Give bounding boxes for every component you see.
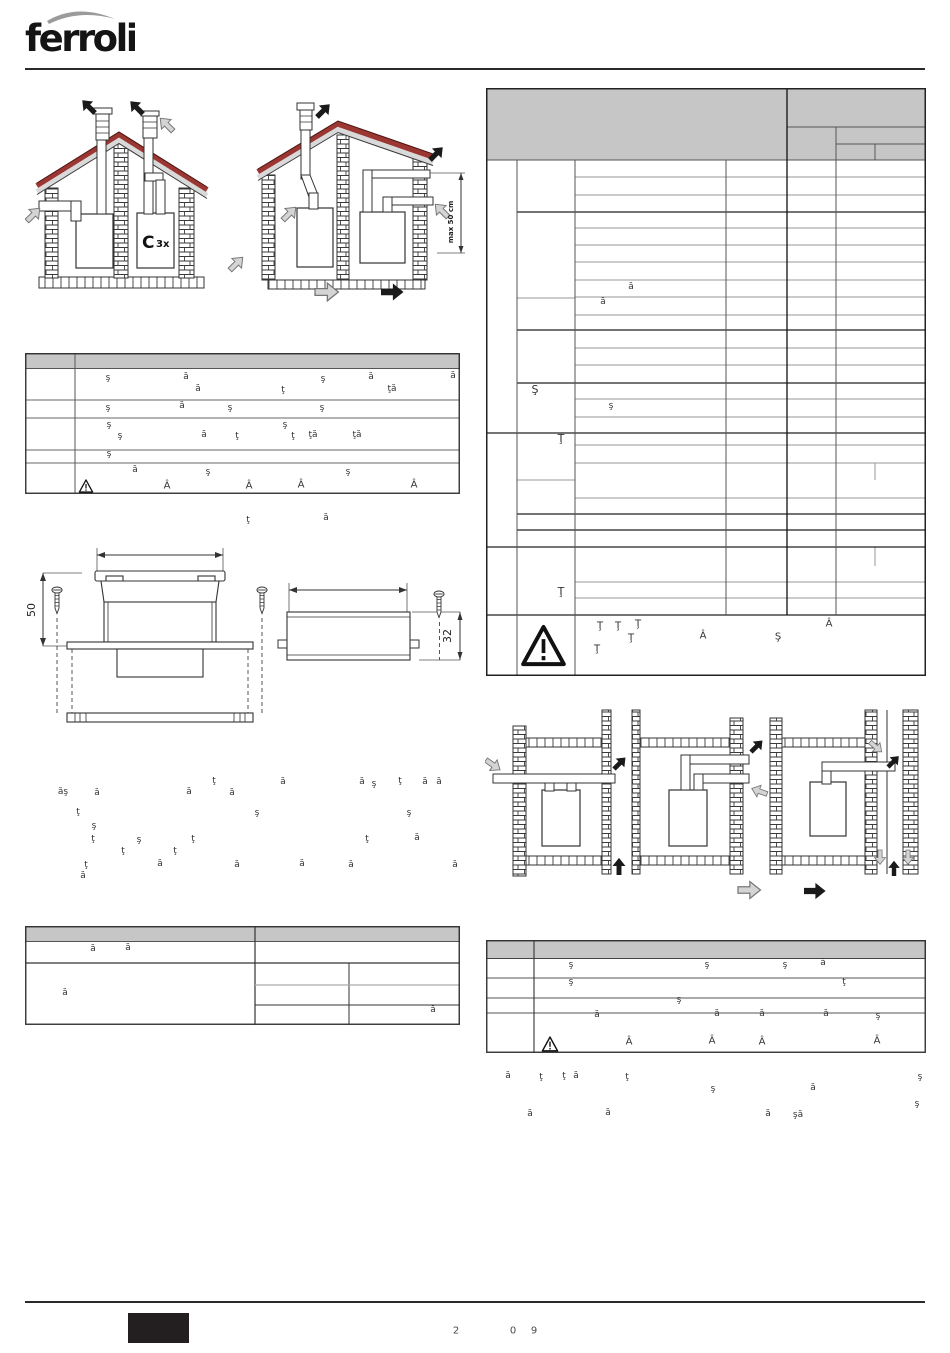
residual-char-bottom-right-table: ş: [876, 1012, 881, 1021]
residual-char-bottom-left-table: ă: [62, 989, 68, 998]
manual-page: ferroli C: [0, 0, 950, 1353]
residual-char-bottom-right-table: Â: [626, 1038, 633, 1048]
residual-char-bottom-left-table: ă: [90, 945, 96, 954]
residual-char-left-table: Â: [411, 481, 418, 491]
residual-char-bottom-right-text: ş: [915, 1100, 920, 1109]
residual-char-bottom-right-table: ă: [823, 1010, 829, 1019]
residual-char-left-table: ş: [320, 404, 325, 413]
residual-char-big-table: Ţ: [558, 586, 565, 597]
residual-char-big-table: Ş: [775, 633, 781, 643]
residual-char-bottom-right-table: Â: [709, 1037, 716, 1047]
residual-char-bottom-right-text: ă: [765, 1110, 771, 1119]
residual-char-paragraph: ă: [234, 861, 240, 870]
residual-char-paragraph: ă: [359, 778, 365, 787]
residual-char-big-table: Ţ: [594, 645, 600, 655]
residual-char-bottom-right-table: ă: [820, 959, 826, 968]
residual-char-left-table: Â: [246, 482, 253, 492]
residual-char-bottom-right-text: ţ: [562, 1072, 566, 1081]
residual-char-bottom-right-table: ş: [677, 996, 682, 1005]
residual-char-bottom-right-text: ţ: [625, 1073, 629, 1082]
residual-char-paragraph: ţ: [191, 835, 195, 844]
residual-char-paragraph: ş: [407, 809, 412, 818]
residual-char-big-table: Ţ: [635, 620, 641, 630]
residual-char-bottom-right-text: ă: [527, 1110, 533, 1119]
residual-char-big-table: Ţ: [615, 622, 621, 632]
residual-char-left-table: ş: [346, 468, 351, 477]
residual-char-bottom-right-text: ţ: [539, 1073, 543, 1082]
residual-char-left-table: ţă: [352, 431, 361, 440]
residual-char-paragraph: ă: [422, 778, 428, 787]
residual-char-paragraph: ţ: [76, 808, 80, 817]
residual-char-paragraph: ţ: [84, 861, 88, 870]
residual-char-paragraph: ă: [280, 778, 286, 787]
residual-char-footer: 9: [531, 1327, 537, 1337]
residual-char-bottom-right-table: ţ: [842, 978, 846, 987]
residual-char-paragraph: ţ: [173, 847, 177, 856]
residual-char-paragraph: ă: [436, 778, 442, 787]
residual-char-left-table: ş: [118, 432, 123, 441]
residual-char-big-table: Â: [826, 620, 833, 630]
residual-char-bottom-left-table: ă: [125, 944, 131, 953]
residual-char-bottom-right-table: ă: [714, 1010, 720, 1019]
residual-char-bottom-right-text: ş: [918, 1073, 923, 1082]
residual-char-paragraph: ş: [92, 822, 97, 831]
residual-char-left-table: ţă: [308, 431, 317, 440]
residual-char-footer: 2: [453, 1327, 459, 1337]
residual-char-left-table: ş: [107, 450, 112, 459]
residual-char-left-table: ă: [450, 372, 456, 381]
residual-char-paragraph: ţ: [365, 835, 369, 844]
residual-char-left-table: ş: [106, 374, 111, 383]
residual-char-paragraph: ă: [186, 788, 192, 797]
residual-char-big-table: Ţ: [597, 622, 603, 632]
residual-char-left-table: ş: [228, 404, 233, 413]
residual-char-mid-line: ă: [323, 514, 329, 523]
residual-char-paragraph: ă: [229, 789, 235, 798]
residual-char-paragraph: ţ: [212, 777, 216, 786]
residual-char-left-table: ş: [283, 421, 288, 430]
residual-char-bottom-right-text: ă: [810, 1084, 816, 1093]
residual-char-paragraph: ă: [94, 789, 100, 798]
residual-char-left-table: Â: [164, 482, 171, 492]
residual-char-left-table: ş: [107, 421, 112, 430]
residual-char-left-table: ă: [201, 431, 207, 440]
residual-char-paragraph: ă: [452, 861, 458, 870]
residual-char-left-table: ă: [195, 385, 201, 394]
residual-char-bottom-right-text: ă: [505, 1072, 511, 1081]
residual-char-paragraph: ă: [348, 861, 354, 870]
residual-char-paragraph: ţ: [398, 777, 402, 786]
residual-char-paragraph: ş: [372, 780, 377, 789]
residual-char-left-table: ş: [206, 468, 211, 477]
residual-char-paragraph: ţ: [121, 847, 125, 856]
residual-char-big-table: Ţ: [628, 634, 634, 644]
residual-char-left-table: Â: [298, 481, 305, 491]
residual-char-bottom-right-table: ş: [569, 978, 574, 987]
residual-char-mid-line: ţ: [246, 516, 250, 525]
residual-char-left-table: ă: [132, 466, 138, 475]
residual-char-paragraph: ă: [414, 834, 420, 843]
residual-char-bottom-right-text: şă: [793, 1111, 803, 1120]
residual-char-left-table: ţ: [291, 432, 295, 441]
residual-char-bottom-right-table: ă: [759, 1010, 765, 1019]
residual-char-big-table: Ş: [532, 384, 539, 395]
residual-char-bottom-right-table: ş: [569, 961, 574, 970]
residual-char-big-table: Ţ: [558, 433, 565, 444]
residual-text-layer: ăăŞşŢŢŢŢŢŢÂŞÂŢşăşăăăţţăşăşşşşşăţţţăţăşăş…: [0, 0, 950, 1353]
residual-char-bottom-left-table: ă: [430, 1006, 436, 1015]
residual-char-paragraph: ţ: [91, 835, 95, 844]
residual-char-left-table: ă: [368, 373, 374, 382]
residual-char-paragraph: ă: [80, 872, 86, 881]
residual-char-left-table: ă: [183, 373, 189, 382]
residual-char-bottom-right-table: ş: [783, 961, 788, 970]
residual-char-footer: 0: [510, 1327, 516, 1337]
residual-char-big-table: Â: [700, 632, 707, 642]
residual-char-big-table: ă: [600, 298, 606, 307]
residual-char-big-table: ş: [609, 402, 614, 411]
residual-char-paragraph: ă: [299, 860, 305, 869]
residual-char-bottom-right-text: ă: [573, 1072, 579, 1081]
residual-char-bottom-right-table: ă: [594, 1011, 600, 1020]
residual-char-bottom-right-table: ş: [705, 961, 710, 970]
residual-char-left-table: ă: [179, 402, 185, 411]
residual-char-bottom-right-text: ş: [711, 1085, 716, 1094]
residual-char-paragraph: ăş: [58, 788, 68, 797]
residual-char-left-table: ţ: [281, 386, 285, 395]
residual-char-big-table: ă: [628, 283, 634, 292]
residual-char-paragraph: ş: [255, 809, 260, 818]
residual-char-left-table: ţ: [235, 432, 239, 441]
residual-char-left-table: ş: [321, 375, 326, 384]
residual-char-left-table: ţă: [387, 385, 396, 394]
residual-char-paragraph: ş: [137, 836, 142, 845]
residual-char-paragraph: ă: [157, 860, 163, 869]
residual-char-bottom-right-table: Â: [874, 1037, 881, 1047]
residual-char-bottom-right-text: ă: [605, 1109, 611, 1118]
residual-char-bottom-right-table: Â: [759, 1038, 766, 1048]
residual-char-left-table: ş: [106, 404, 111, 413]
